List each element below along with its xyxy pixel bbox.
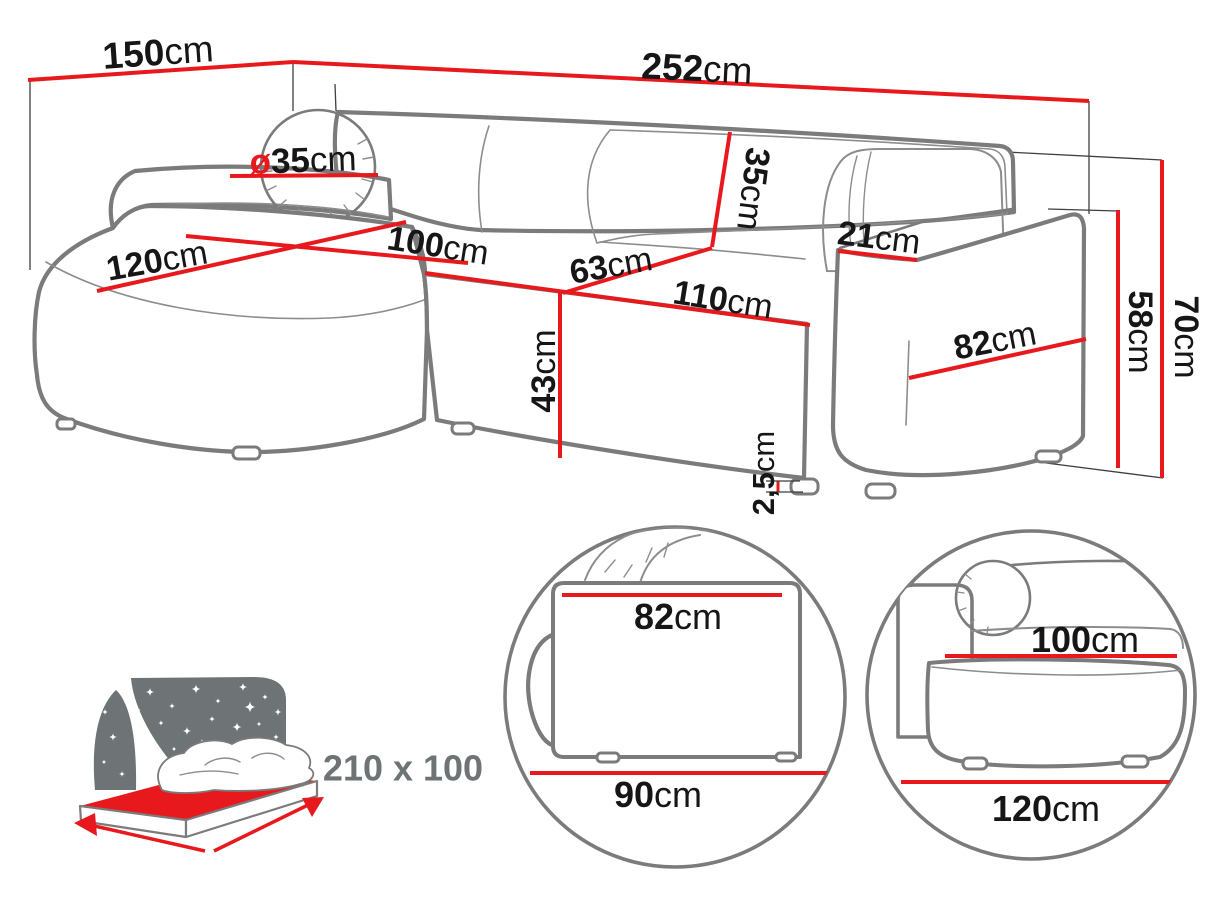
dim-label-leg-height: 2,5cm xyxy=(746,431,781,515)
sofa-dimension-diagram: 150cm 252cm ø35cm 120cm 100cm 63cm 110cm… xyxy=(0,0,1214,911)
detail-circle-chaise: 100cm 120cm xyxy=(867,531,1195,859)
dim-label-70: 70cm xyxy=(1167,295,1205,378)
detail-armrest-bottom-label: 90cm xyxy=(614,774,702,815)
dim-label-63: 63cm xyxy=(567,240,655,292)
dim-label-150: 150cm xyxy=(101,28,215,77)
sleeping-function-icon: 210 x 100 xyxy=(74,677,483,851)
dim-label-diameter-35: ø35cm xyxy=(249,139,357,182)
detail-chaise-top-label: 100cm xyxy=(1031,619,1139,660)
sleeping-size-label: 210 x 100 xyxy=(323,748,483,789)
dim-label-252: 252cm xyxy=(641,45,754,91)
night-panel-wing xyxy=(94,690,136,790)
detail-circle-armrest: 82cm 90cm xyxy=(505,527,845,867)
detail-chaise-bottom-label: 120cm xyxy=(992,788,1100,829)
detail-armrest-top-label: 82cm xyxy=(634,596,722,637)
sofa-backrest xyxy=(335,112,1014,231)
dim-label-58: 58cm xyxy=(1121,290,1159,373)
dim-label-43: 43cm xyxy=(525,329,563,412)
chaise-body xyxy=(35,206,427,452)
